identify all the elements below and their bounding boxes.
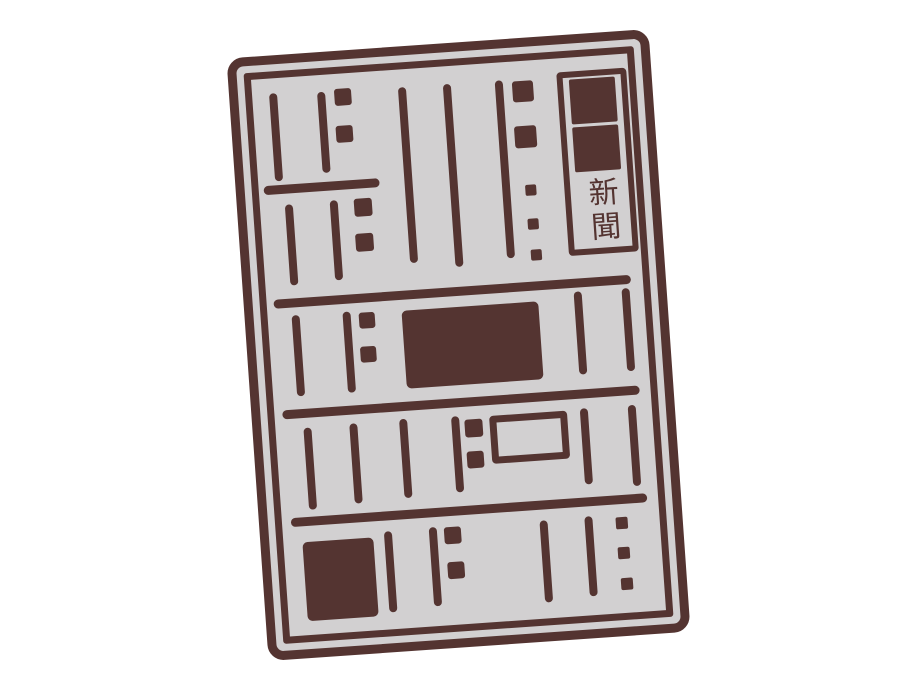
heading-block: [514, 125, 537, 148]
outlined-ad-box: [489, 411, 570, 464]
masthead-block: [569, 76, 618, 124]
masthead-block: [572, 124, 621, 172]
text-dot: [618, 547, 631, 560]
heading-block: [355, 233, 374, 252]
heading-block: [444, 526, 462, 544]
text-dot: [615, 517, 628, 530]
heading-block: [464, 419, 483, 438]
heading-block: [359, 312, 376, 329]
heading-block: [334, 88, 352, 106]
newspaper-illustration: 新聞: [226, 29, 690, 661]
text-dot: [621, 577, 634, 590]
masthead-text: 新聞: [584, 176, 619, 246]
heading-block: [335, 125, 353, 143]
text-dot: [527, 218, 539, 230]
illustration-canvas: 新聞: [0, 0, 920, 694]
text-dot: [525, 184, 537, 196]
masthead-box: 新聞: [556, 68, 639, 256]
heading-block: [360, 346, 377, 363]
heading-block: [354, 198, 373, 217]
text-dot: [531, 249, 543, 261]
photo-placeholder: [302, 537, 378, 621]
heading-block: [466, 451, 484, 469]
heading-block: [512, 80, 534, 102]
heading-block: [447, 561, 465, 579]
photo-placeholder: [401, 301, 543, 388]
